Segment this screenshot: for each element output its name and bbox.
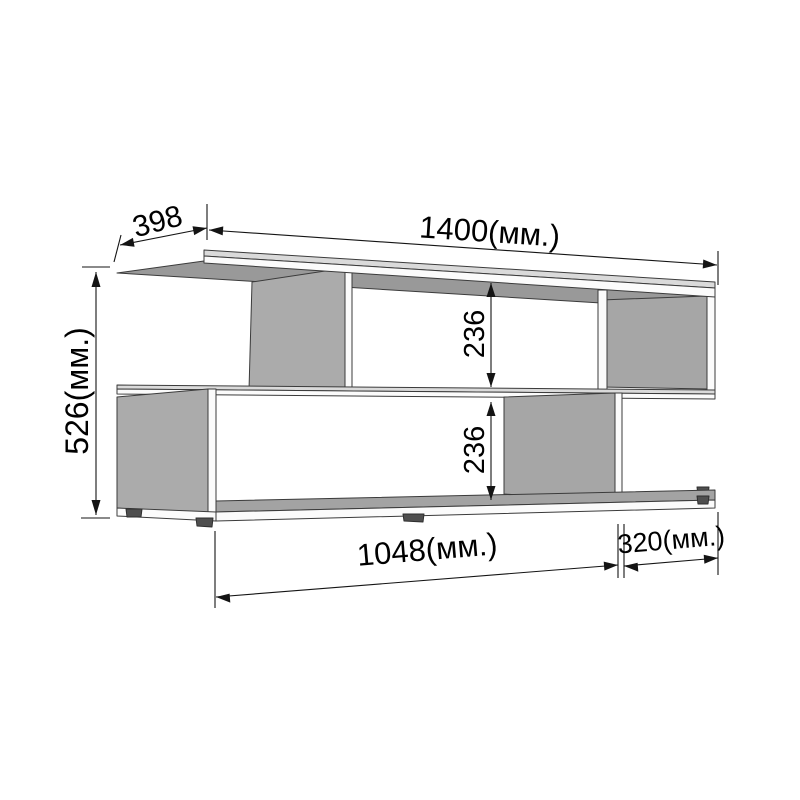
dim-bottom-left-label: 1048(мм.) [355,526,498,573]
dim-bottom-left-arrow-right [604,562,618,571]
lower-divider-front-edge [615,393,622,503]
dim-height-arrow-top [92,272,101,287]
right-side-panel-front-edge [707,289,715,390]
dim-width-arrow-right [703,260,717,269]
dim-bottom-left-line [216,565,618,597]
dim-bottom-left-span: 1048(мм.) [215,524,618,608]
left-side-panel-outer-face [117,389,208,517]
upper-divider-left-face [249,268,345,390]
dim-bottom-right-arrow-right [704,555,718,564]
dim-upper-clearance: 236 [459,283,496,387]
dim-lower-clearance-arrow-top [487,402,496,416]
left-side-panel-front-edge [208,389,216,518]
dim-width-label: 1400(мм.) [418,209,561,253]
dim-depth-arrow-left [120,238,135,247]
dim-height-arrow-bottom [92,500,101,515]
dim-lower-clearance-label: 236 [459,426,491,474]
foot-back-left [126,509,142,517]
dim-width-arrow-left [209,226,223,235]
upper-divider-front-edge [345,266,352,390]
dim-height-label: 526(мм.) [59,327,95,455]
shelf-technical-drawing: 398 1400(мм.) 526(мм.) 236 [0,0,800,800]
dim-bottom-right-label: 320(мм.) [616,521,726,560]
foot-front-left [196,518,213,527]
dim-upper-clearance-arrow-bottom [487,373,496,387]
dim-bottom-right-arrow-left [624,563,638,572]
dim-depth: 398 [114,199,207,262]
dim-upper-clearance-label: 236 [459,310,491,358]
dim-height: 526(мм.) [59,267,110,518]
upper-right-compartment-inner-face [601,296,707,389]
upper-right-divider-front-edge [598,290,607,392]
dim-depth-ext-line [114,235,121,262]
dim-bottom-left-arrow-left [216,594,230,603]
technical-drawing-page: 398 1400(мм.) 526(мм.) 236 [0,0,800,800]
dim-depth-label: 398 [129,199,186,244]
dim-bottom-right-span: 320(мм.) [616,512,726,578]
dim-depth-arrow-right [193,226,208,235]
dim-lower-clearance: 236 [459,402,496,500]
foot-front-right [697,496,709,504]
lower-divider-left-face [504,393,615,502]
foot-front-middle [403,514,424,522]
dim-bottom-right-line [624,558,718,566]
furniture [117,250,715,527]
